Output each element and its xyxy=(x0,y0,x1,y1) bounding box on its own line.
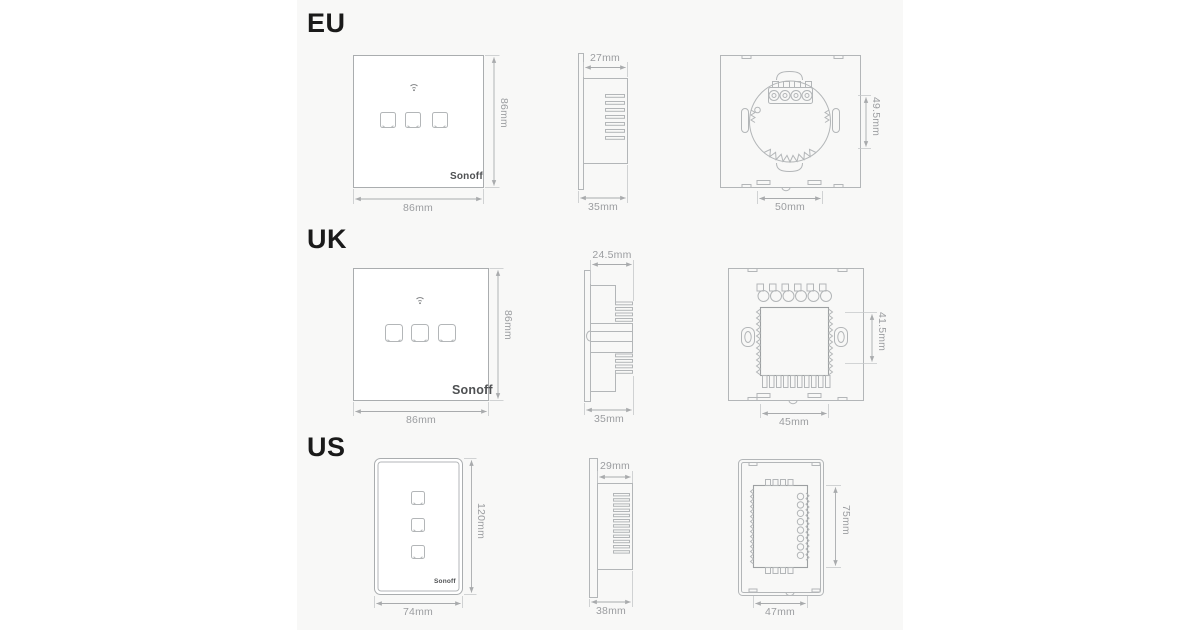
eu-side-body-depth-label: 27mm xyxy=(575,52,635,64)
region-label-eu: EU xyxy=(307,8,346,39)
brand-logo: Sonoff xyxy=(450,171,483,182)
bottom-comb xyxy=(766,568,794,574)
mounting-ear xyxy=(835,328,848,347)
eu-back-drawing xyxy=(721,56,872,205)
eu-back-height-label: 49.5mm xyxy=(870,97,882,136)
us-back-height-label: 75mm xyxy=(840,505,852,535)
us-side-body-depth-label: 29mm xyxy=(585,460,645,472)
brand-logo: Sonoff xyxy=(434,578,456,585)
square-mounting-module xyxy=(761,308,829,376)
terminal-block xyxy=(769,82,813,104)
us-front-drawing xyxy=(375,459,477,609)
rect-mounting-module xyxy=(754,486,808,568)
uk-back-height-label: 41.5mm xyxy=(876,312,888,351)
terminal-fins xyxy=(616,302,633,321)
region-label-us: US xyxy=(307,432,346,463)
uk-side-drawing xyxy=(585,260,634,415)
eu-front-width-label: 86mm xyxy=(388,202,448,214)
eu-back-width-label: 50mm xyxy=(760,201,820,213)
uk-front-width-label: 86mm xyxy=(391,414,451,426)
uk-side-total-depth-label: 35mm xyxy=(579,413,639,425)
uk-side-body-depth-label: 24.5mm xyxy=(582,249,642,261)
technical-drawing-canvas xyxy=(0,0,1200,630)
mounting-ear xyxy=(742,109,749,133)
uk-front-height-label: 86mm xyxy=(502,310,514,340)
us-back-width-label: 47mm xyxy=(750,606,810,618)
us-front-height-label: 120mm xyxy=(475,503,487,539)
round-mounting-module xyxy=(750,81,831,162)
dimension-sheet: EU UK US Sonoff Sonoff Sonoff 86mm 86mm … xyxy=(0,0,1200,630)
us-side-total-depth-label: 38mm xyxy=(581,605,641,617)
eu-side-total-depth-label: 35mm xyxy=(573,201,633,213)
terminal-fins xyxy=(614,494,630,554)
region-label-uk: UK xyxy=(307,224,347,255)
brand-logo: Sonoff xyxy=(452,383,493,397)
eu-front-height-label: 86mm xyxy=(498,98,510,128)
mounting-ear xyxy=(742,328,755,347)
terminal-row xyxy=(757,284,832,302)
terminal-holes xyxy=(797,493,803,558)
us-front-width-label: 74mm xyxy=(388,606,448,618)
uk-back-drawing xyxy=(729,269,878,419)
uk-back-width-label: 45mm xyxy=(764,416,824,428)
top-comb xyxy=(766,480,794,486)
us-side-drawing xyxy=(590,459,633,608)
bottom-comb xyxy=(763,376,831,388)
mounting-ear xyxy=(833,109,840,133)
serrated-edge xyxy=(764,149,816,162)
eu-side-drawing xyxy=(579,54,628,204)
terminal-fins xyxy=(616,354,633,373)
us-back-drawing xyxy=(739,460,842,609)
terminal-fins xyxy=(606,95,625,140)
